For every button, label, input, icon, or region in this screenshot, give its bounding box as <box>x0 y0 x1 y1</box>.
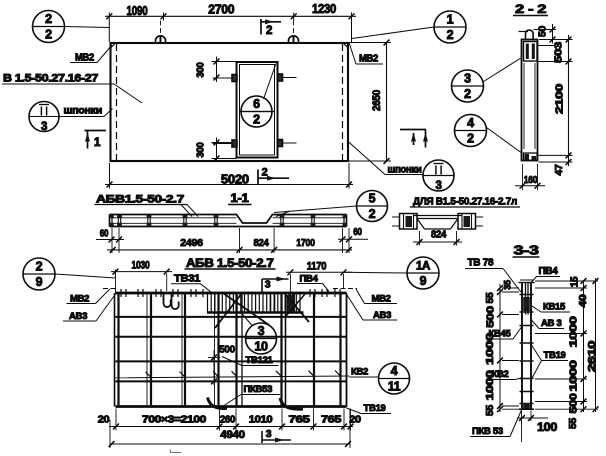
svg-text:МВ2: МВ2 <box>75 53 95 64</box>
svg-text:500: 500 <box>486 305 497 327</box>
svg-text:шпонки: шпонки <box>388 165 422 176</box>
svg-text:2: 2 <box>467 132 474 146</box>
svg-text:503: 503 <box>553 41 565 63</box>
svg-text:765: 765 <box>321 415 342 426</box>
svg-text:1000: 1000 <box>485 332 496 365</box>
svg-text:АВ3: АВ3 <box>373 310 391 321</box>
svg-text:55: 55 <box>485 404 496 416</box>
svg-text:2: 2 <box>253 113 260 127</box>
svg-text:2: 2 <box>464 87 471 101</box>
svg-text:2: 2 <box>447 28 454 42</box>
svg-text:20: 20 <box>98 415 110 426</box>
svg-text:2: 2 <box>266 25 272 37</box>
svg-text:824: 824 <box>254 237 269 249</box>
svg-text:20: 20 <box>349 415 361 426</box>
svg-text:5020: 5020 <box>221 172 249 187</box>
svg-text:АБВ1.5-50-2.7: АБВ1.5-50-2.7 <box>96 194 184 206</box>
svg-text:АВ 3: АВ 3 <box>541 318 561 329</box>
svg-text:2496: 2496 <box>180 237 203 249</box>
svg-text:1010: 1010 <box>249 415 273 426</box>
svg-text:ПВ4: ПВ4 <box>300 274 319 285</box>
svg-text:55: 55 <box>568 417 579 429</box>
svg-text:ПКВ 53: ПКВ 53 <box>472 426 503 437</box>
svg-text:МВ2: МВ2 <box>372 294 391 305</box>
svg-text:55: 55 <box>485 292 496 304</box>
svg-text:3: 3 <box>464 72 471 86</box>
svg-text:КВ2: КВ2 <box>351 367 368 378</box>
svg-text:60: 60 <box>353 227 362 238</box>
svg-text:2: 2 <box>45 12 52 26</box>
svg-text:35: 35 <box>503 279 514 289</box>
svg-text:500: 500 <box>569 393 580 414</box>
svg-text:2650: 2650 <box>371 90 383 111</box>
svg-text:3: 3 <box>435 180 441 192</box>
svg-text:1090: 1090 <box>127 4 148 18</box>
svg-text:15: 15 <box>570 276 581 287</box>
svg-text:2700: 2700 <box>208 3 234 17</box>
svg-text:2: 2 <box>36 260 43 274</box>
svg-text:765: 765 <box>289 415 311 426</box>
svg-text:300: 300 <box>195 142 207 157</box>
svg-text:ТВ19: ТВ19 <box>364 403 386 414</box>
svg-text:40: 40 <box>578 294 589 308</box>
svg-text:1-1: 1-1 <box>231 193 250 205</box>
svg-text:ТВ19: ТВ19 <box>544 350 566 361</box>
svg-text:ПВ4: ПВ4 <box>539 266 559 277</box>
svg-text:5: 5 <box>369 192 376 206</box>
svg-text:ПКВ53: ПКВ53 <box>244 384 273 395</box>
svg-text:3-3: 3-3 <box>514 243 539 258</box>
svg-text:1170: 1170 <box>307 261 327 273</box>
svg-text:В 1.5-50.27.16-27: В 1.5-50.27.16-27 <box>3 73 98 85</box>
svg-text:500: 500 <box>219 344 235 356</box>
svg-text:2: 2 <box>262 167 268 179</box>
svg-text:2: 2 <box>45 28 52 42</box>
svg-text:ДЛЯ В1.5-50.27.16-2.7л: ДЛЯ В1.5-50.27.16-2.7л <box>413 196 517 208</box>
svg-text:ТВ121: ТВ121 <box>246 355 274 366</box>
svg-text:1000: 1000 <box>569 315 580 347</box>
svg-text:ТВ 78: ТВ 78 <box>468 258 494 269</box>
svg-text:ТВ31: ТВ31 <box>174 274 201 285</box>
svg-text:47: 47 <box>553 164 565 175</box>
svg-text:АБВ 1.5-50-2.7: АБВ 1.5-50-2.7 <box>186 258 274 270</box>
svg-text:АВ3: АВ3 <box>69 311 87 322</box>
svg-text:1030: 1030 <box>132 260 150 272</box>
svg-text:1000: 1000 <box>485 369 496 400</box>
svg-text:1700: 1700 <box>296 237 315 249</box>
svg-text:1000: 1000 <box>569 359 580 391</box>
svg-text:4940: 4940 <box>220 429 245 441</box>
svg-text:60: 60 <box>100 229 109 240</box>
svg-text:9: 9 <box>36 275 43 289</box>
svg-text:КВ15: КВ15 <box>543 302 566 313</box>
svg-text:4: 4 <box>391 364 398 378</box>
svg-text:6: 6 <box>253 97 260 111</box>
svg-text:1: 1 <box>447 13 454 27</box>
svg-text:11: 11 <box>388 380 401 394</box>
svg-text:700×3=2100: 700×3=2100 <box>142 415 207 426</box>
svg-text:3: 3 <box>258 324 265 338</box>
svg-text:2100: 2100 <box>554 83 566 114</box>
svg-text:4: 4 <box>467 116 474 130</box>
svg-text:1230: 1230 <box>312 2 336 16</box>
svg-text:260: 260 <box>220 415 236 426</box>
svg-text:160: 160 <box>524 174 538 186</box>
svg-text:2: 2 <box>369 207 376 221</box>
svg-text:1: 1 <box>94 135 101 149</box>
svg-text:100: 100 <box>537 422 557 434</box>
svg-text:300: 300 <box>195 62 207 77</box>
svg-text:2 - 2: 2 - 2 <box>515 2 547 16</box>
svg-text:3: 3 <box>266 428 272 440</box>
svg-text:50: 50 <box>538 25 549 37</box>
svg-text:МВ2: МВ2 <box>359 54 379 65</box>
svg-text:3: 3 <box>265 279 271 291</box>
svg-text:1А: 1А <box>416 261 430 273</box>
svg-text:3: 3 <box>41 121 47 133</box>
svg-text:2610: 2610 <box>587 340 598 372</box>
svg-text:шпонки: шпонки <box>64 105 103 117</box>
svg-text:10: 10 <box>254 340 268 354</box>
svg-text:824: 824 <box>431 229 446 241</box>
svg-text:МВ2: МВ2 <box>70 294 89 305</box>
svg-text:9: 9 <box>420 274 427 288</box>
